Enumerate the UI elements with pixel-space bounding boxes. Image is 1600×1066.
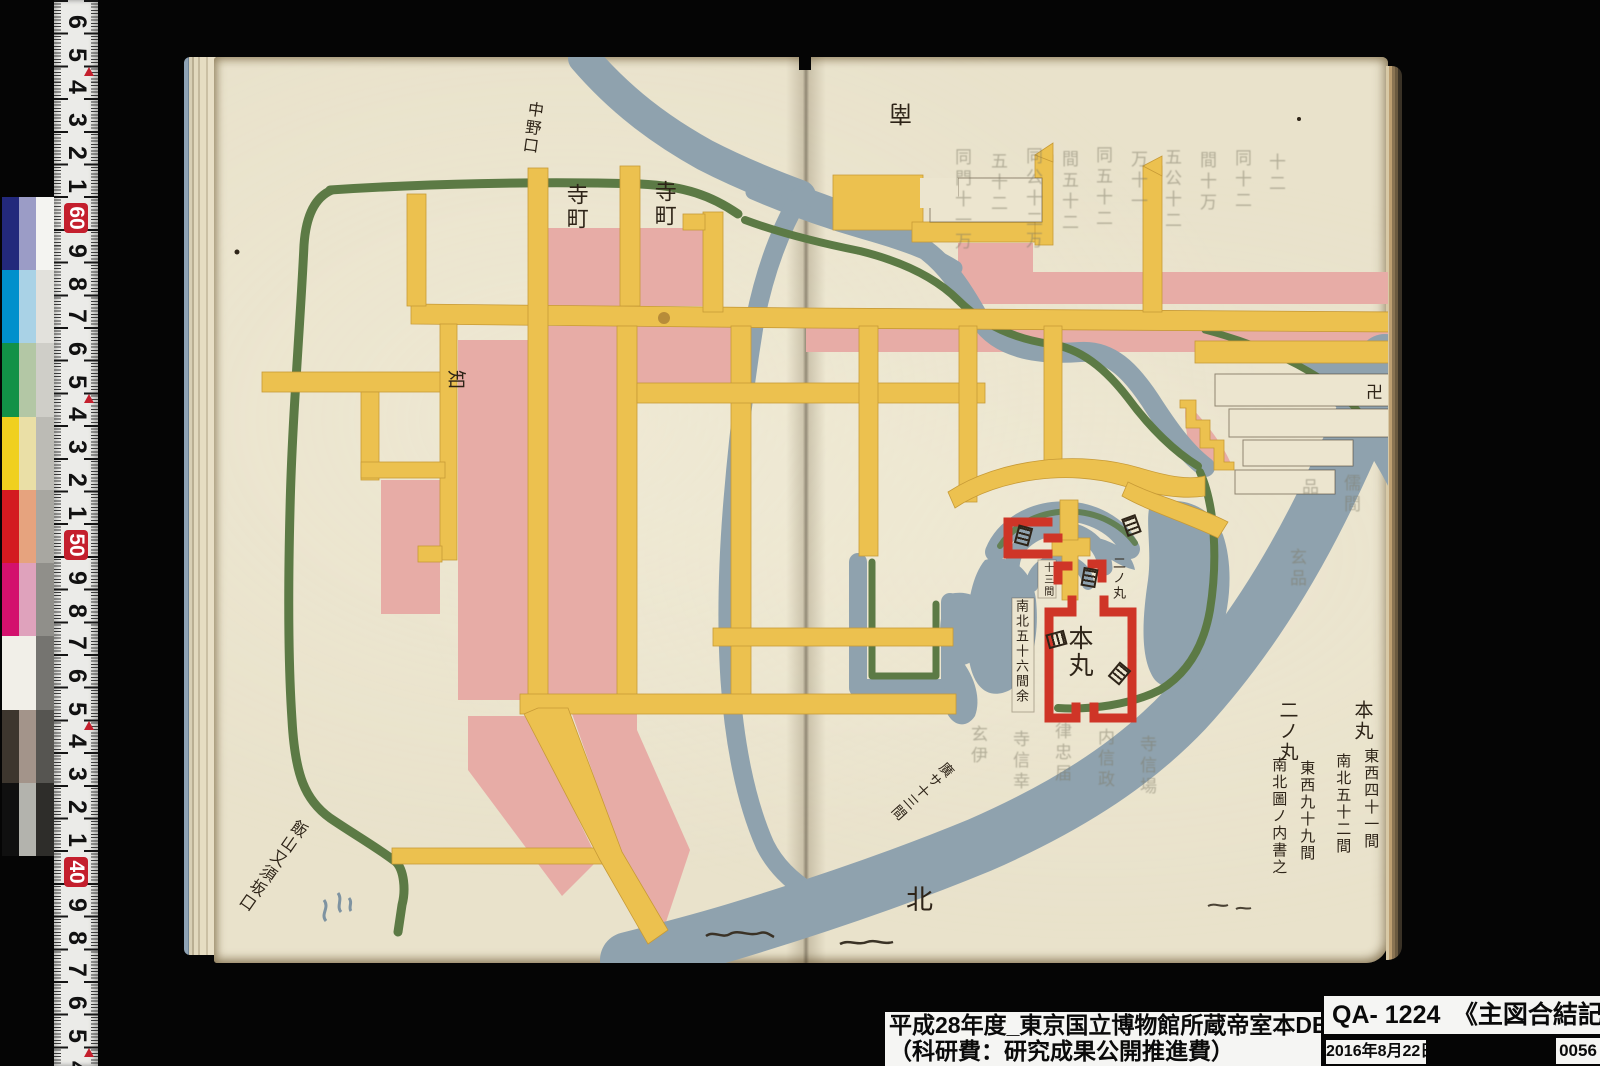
map-label: 東西四十一間 bbox=[1363, 748, 1379, 850]
project-caption-box: 平成28年度_東京国立博物館所蔵帝室本DB （科研費：研究成果公開推進費） bbox=[885, 1012, 1321, 1066]
map-label: 南北五十二間 bbox=[1335, 753, 1351, 855]
bleed-through-text: 同十二 bbox=[1229, 149, 1254, 212]
map-label: 寺町 bbox=[563, 183, 587, 231]
bleed-through-text: 律忠届 bbox=[1049, 722, 1074, 785]
bleed-through-text: 十二 bbox=[1263, 153, 1288, 195]
map-label: 東西九十九間 bbox=[1299, 760, 1315, 862]
bleed-through-text: 同門十一万 bbox=[949, 148, 974, 253]
bleed-through-text: 同公十二万 bbox=[1020, 147, 1045, 252]
map-label: 南北圖ノ内書之 bbox=[1271, 757, 1287, 876]
bleed-through-text: 寺信幸 bbox=[1007, 730, 1032, 793]
bleed-through-text: 万十一 bbox=[1125, 150, 1150, 213]
bleed-through-text: 寺信場 bbox=[1134, 735, 1159, 798]
bleed-through-text: 玄品 bbox=[1284, 548, 1309, 590]
bleed-through-text: 間五十二 bbox=[1056, 150, 1081, 234]
project-caption-line1: 平成28年度_東京国立博物館所蔵帝室本DB bbox=[889, 1012, 1321, 1038]
map-label: 南 bbox=[889, 100, 912, 125]
bleed-through-text: 五十二 bbox=[985, 152, 1010, 215]
map-label: 寺町 bbox=[651, 180, 675, 228]
frame-number-box: 0056 bbox=[1556, 1038, 1600, 1064]
project-caption-line2: （科研費：研究成果公開推進費） bbox=[889, 1038, 1321, 1064]
bleed-through-text: 玄伊 bbox=[965, 725, 990, 767]
shoot-date-box: 2016年8月22日 bbox=[1326, 1040, 1426, 1064]
map-label: 二ノ丸 bbox=[1110, 556, 1124, 601]
bleed-through-text: 間十万 bbox=[1194, 151, 1219, 214]
bleed-through-text: 儒間 bbox=[1338, 474, 1363, 516]
digitization-photo: 654321609876543215098765432140987654 bbox=[0, 0, 1600, 1066]
map-label: 知 bbox=[445, 370, 466, 389]
bleed-through-text: 内信政 bbox=[1092, 728, 1117, 791]
map-label: 二ノ丸 bbox=[1277, 700, 1298, 763]
bleed-through-text: 同五十二 bbox=[1090, 146, 1115, 230]
map-label: 北 bbox=[906, 886, 933, 915]
map-label: 本丸 bbox=[1066, 625, 1093, 679]
map-label: 卍 bbox=[1366, 384, 1383, 402]
catalog-number-box: QA- 1224 《主図合結記》 bbox=[1324, 996, 1600, 1034]
map-label: 十三間 bbox=[1041, 562, 1052, 598]
bleed-through-text: 品 bbox=[1296, 478, 1321, 499]
map-label: 本丸 bbox=[1352, 700, 1373, 742]
map-label: 南北五十六間余 bbox=[1013, 599, 1027, 704]
bleed-through-text: 五公十二 bbox=[1159, 148, 1184, 232]
